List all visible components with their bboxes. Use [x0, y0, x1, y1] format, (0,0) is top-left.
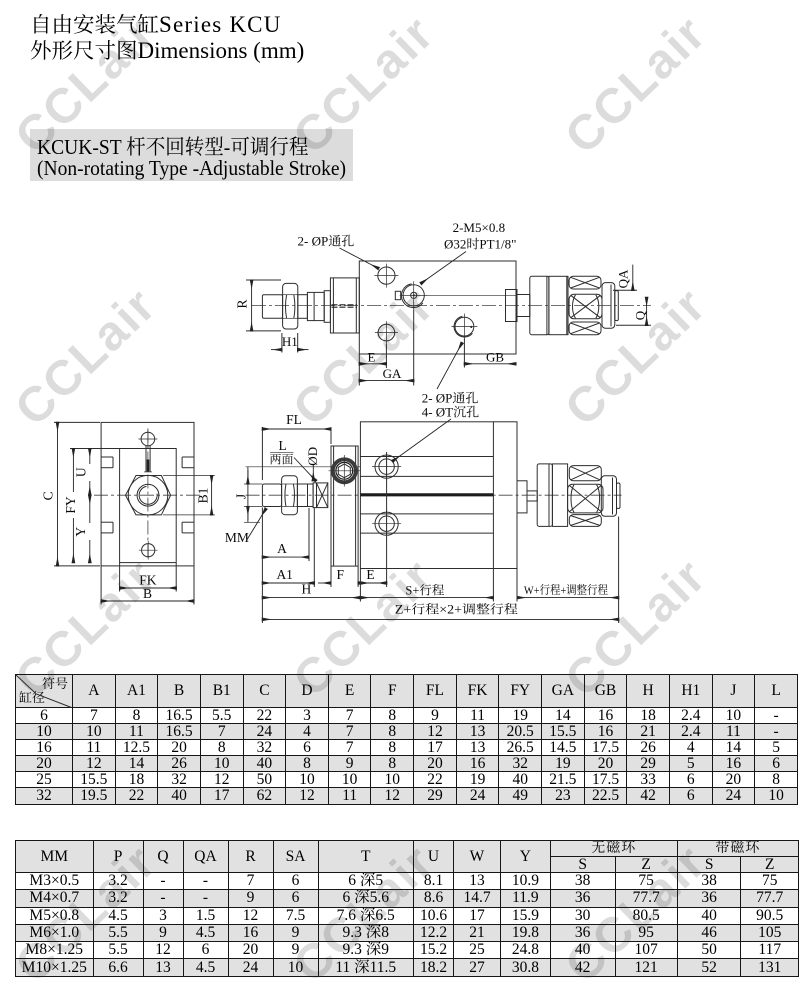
svg-text:MM: MM: [225, 530, 249, 545]
svg-text:Y: Y: [73, 527, 88, 537]
svg-text:GA: GA: [383, 366, 402, 381]
svg-text:Q: Q: [633, 310, 648, 320]
svg-text:Z+行程×2+调整行程: Z+行程×2+调整行程: [395, 602, 519, 616]
svg-text:GB: GB: [486, 349, 504, 364]
svg-text:FY: FY: [63, 496, 78, 514]
svg-text:ØD: ØD: [305, 447, 320, 466]
svg-text:B: B: [143, 586, 152, 601]
svg-text:2-M5×0.8: 2-M5×0.8: [453, 220, 505, 235]
svg-text:E: E: [366, 567, 374, 582]
svg-text:两面: 两面: [270, 453, 294, 467]
svg-text:Ø32时PT1/8": Ø32时PT1/8": [444, 236, 516, 251]
svg-text:A1: A1: [276, 567, 293, 582]
svg-text:R: R: [235, 299, 250, 308]
svg-text:C: C: [41, 491, 56, 500]
svg-text:H1: H1: [282, 334, 298, 349]
svg-text:A: A: [277, 541, 287, 556]
svg-text:J: J: [234, 494, 249, 499]
svg-text:E: E: [368, 349, 376, 364]
svg-text:L: L: [279, 438, 287, 453]
svg-text:F: F: [336, 567, 344, 582]
svg-text:B1: B1: [196, 488, 211, 504]
svg-text:S+行程: S+行程: [405, 583, 445, 597]
svg-text:QA: QA: [616, 269, 631, 288]
svg-text:FL: FL: [286, 412, 302, 427]
svg-text:2- ØP通孔: 2- ØP通孔: [298, 234, 355, 249]
svg-text:2- ØP通孔: 2- ØP通孔: [422, 390, 479, 405]
svg-text:U: U: [74, 467, 89, 477]
svg-text:W+行程+调整行程: W+行程+调整行程: [524, 583, 608, 597]
svg-text:4- ØT沉孔: 4- ØT沉孔: [422, 404, 479, 419]
svg-text:H: H: [302, 581, 312, 596]
